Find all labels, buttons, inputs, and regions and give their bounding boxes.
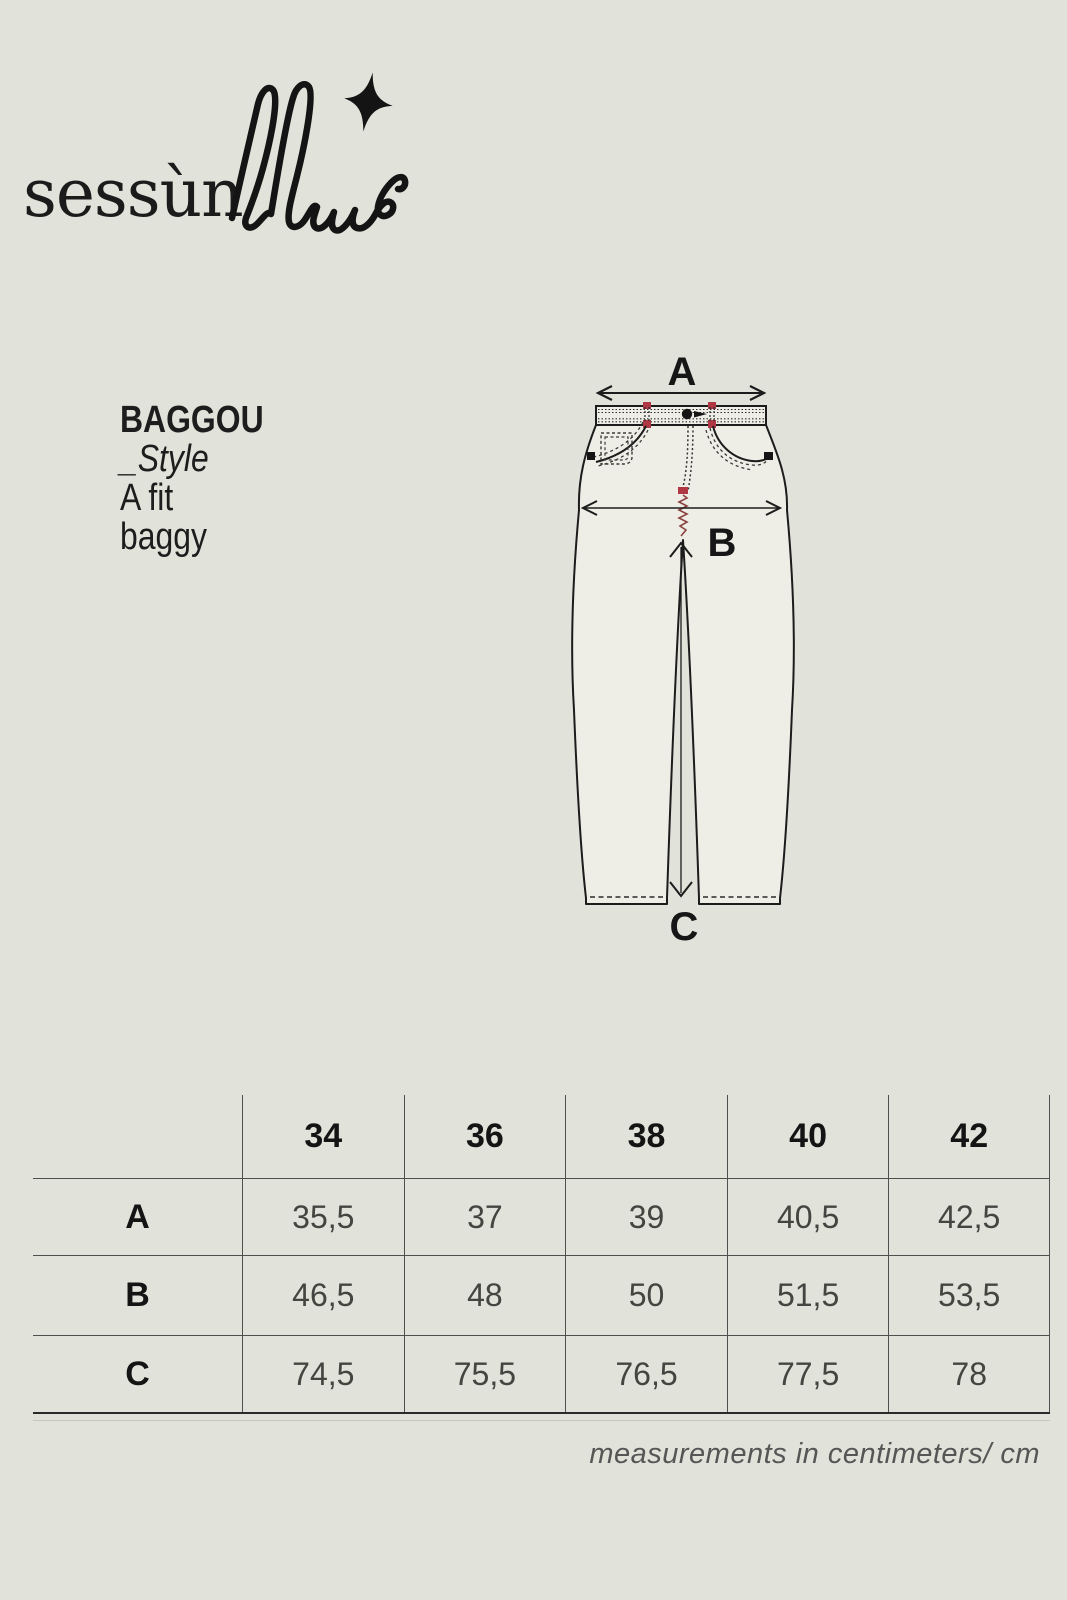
measurements-note: measurements in centimeters/ cm [0,1438,1040,1471]
size-value-cell: 77,5 [727,1336,889,1412]
pocket-bartack-right [764,452,773,460]
size-col-header: 38 [565,1095,727,1179]
size-value-cell: 46,5 [242,1256,404,1336]
fit-line-2: baggy [120,518,264,557]
size-value-cell: 48 [404,1256,566,1336]
size-col-header: 34 [242,1095,404,1179]
size-value-cell: 35,5 [242,1179,404,1256]
size-col-header: 36 [404,1095,566,1179]
size-guide-page: sessùn BAGGOU _Style A fit baggy [0,0,1067,1600]
pocket-bartack-left [587,452,595,460]
size-value-cell: 51,5 [727,1256,889,1336]
size-value-cell: 76,5 [565,1336,727,1412]
size-value-cell: 75,5 [404,1336,566,1412]
size-value-cell: 42,5 [888,1179,1050,1256]
size-col-header: 40 [727,1095,889,1179]
size-col-header: 42 [888,1095,1050,1179]
size-value-cell: 39 [565,1179,727,1256]
measure-label-b: B [708,521,737,565]
size-table: 34 36 38 40 42 A 35,5 37 39 40,5 42,5 B … [33,1095,1050,1414]
size-value-cell: 53,5 [888,1256,1050,1336]
table-bottom-shadow-line [33,1420,1050,1421]
table-corner-cell [33,1095,242,1179]
size-value-cell: 74,5 [242,1336,404,1412]
blue-script-logo [210,60,425,250]
row-label-b: B [33,1256,242,1336]
size-value-cell: 37 [404,1179,566,1256]
measure-label-a: A [668,350,697,394]
row-label-a: A [33,1179,242,1256]
jeans-body [572,425,794,904]
size-value-cell: 50 [565,1256,727,1336]
measure-label-c: C [670,905,699,949]
style-name: BAGGOU [120,401,264,440]
waistband [596,406,766,425]
four-point-star-icon [340,69,398,136]
size-value-cell: 40,5 [727,1179,889,1256]
style-label: _Style [120,440,264,479]
row-label-c: C [33,1336,242,1412]
style-block: BAGGOU _Style A fit baggy [120,401,264,557]
fit-line-1: A fit [120,479,264,518]
fly-bartack [678,487,688,494]
jeans-diagram: A B C [550,345,810,960]
size-value-cell: 78 [888,1336,1050,1412]
